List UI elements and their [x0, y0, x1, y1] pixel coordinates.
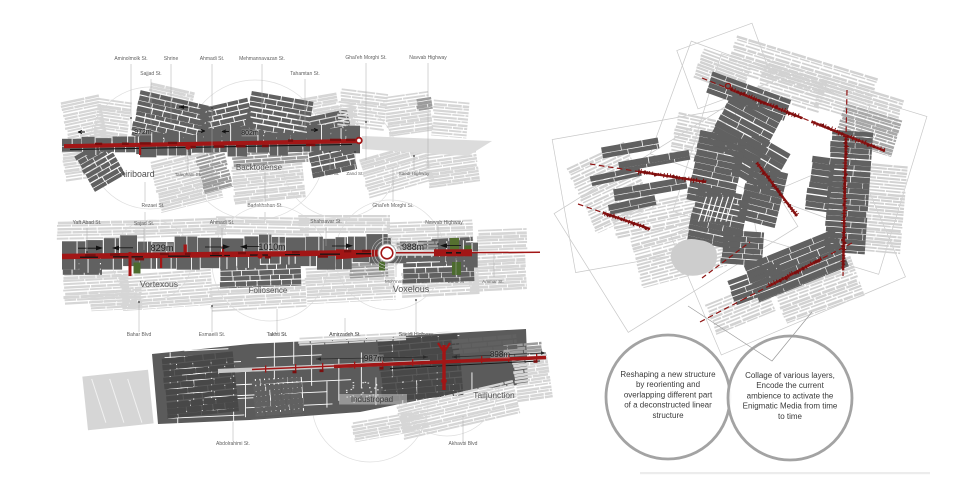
svg-text:Aminolmolk St.: Aminolmolk St. [114, 56, 147, 62]
svg-text:Zand St: Zand St [448, 279, 465, 284]
svg-text:898m: 898m [490, 350, 510, 359]
svg-text:Voxelous: Voxelous [393, 284, 430, 294]
svg-text:972m: 972m [134, 129, 152, 136]
svg-text:Encode the current: Encode the current [756, 381, 824, 390]
svg-text:1010m: 1010m [259, 242, 286, 252]
svg-text:Navvab Highway: Navvab Highway [425, 220, 463, 226]
svg-text:Sajjad St.: Sajjad St. [140, 71, 161, 77]
svg-text:Akhavbi Blvd: Akhavbi Blvd [449, 441, 478, 447]
svg-text:Rezaei St.: Rezaei St. [141, 203, 164, 209]
svg-text:Bahar Blvd: Bahar Blvd [127, 332, 152, 338]
svg-text:Airiboard: Airiboard [119, 169, 154, 179]
svg-text:Ahmadi St.: Ahmadi St. [200, 56, 224, 62]
svg-text:Backtodense: Backtodense [236, 163, 283, 172]
svg-text:Collage of various layers,: Collage of various layers, [745, 371, 835, 380]
svg-text:829m: 829m [151, 243, 174, 253]
svg-text:Amirzadeh St.: Amirzadeh St. [329, 332, 360, 338]
svg-text:Ghal'eh Morghi St.: Ghal'eh Morghi St. [372, 203, 413, 209]
svg-text:Reshaping a new structure: Reshaping a new structure [620, 370, 716, 379]
svg-text:Ammar St.: Ammar St. [482, 279, 504, 284]
svg-text:Sajad St.: Sajad St. [134, 221, 154, 227]
svg-text:Mehmannavazan St.: Mehmannavazan St. [239, 56, 285, 62]
svg-text:Abdolrahimi St.: Abdolrahimi St. [216, 441, 250, 447]
svg-text:Ghal'eh Morghi St.: Ghal'eh Morghi St. [345, 55, 386, 61]
svg-text:Shahsavar St.: Shahsavar St. [310, 219, 341, 225]
svg-text:Shrine: Shrine [164, 56, 179, 62]
svg-text:overlapping different part: overlapping different part [624, 390, 713, 399]
svg-text:802m: 802m [241, 130, 259, 137]
svg-text:Enigmatic Media from time: Enigmatic Media from time [743, 402, 838, 411]
svg-text:Navvab Highway: Navvab Highway [409, 55, 447, 61]
svg-text:Esmaeili St.: Esmaeili St. [199, 332, 225, 338]
svg-text:Taleghani St.: Taleghani St. [175, 172, 202, 177]
svg-text:Ahmadi St.: Ahmadi St. [210, 220, 234, 226]
svg-text:of a deconstructed linear: of a deconstructed linear [624, 401, 712, 410]
svg-text:987m: 987m [364, 354, 384, 363]
svg-text:Saedi Highway: Saedi Highway [399, 171, 430, 176]
svg-text:to time: to time [778, 412, 803, 421]
svg-text:ambience to activate the: ambience to activate the [747, 391, 834, 400]
svg-text:structure: structure [652, 411, 684, 420]
svg-text:Industropad: Industropad [351, 395, 393, 404]
svg-text:Badakhshan St.: Badakhshan St. [247, 203, 282, 209]
svg-text:Yaft Abad St.: Yaft Abad St. [73, 220, 102, 226]
svg-text:Tahamtan St.: Tahamtan St. [290, 71, 319, 77]
svg-text:Foliosence: Foliosence [249, 286, 288, 295]
svg-text:Saeidi Highway: Saeidi Highway [399, 332, 434, 338]
svg-text:Tailjunction: Tailjunction [473, 390, 515, 400]
svg-text:Safari St.: Safari St. [321, 171, 340, 176]
svg-text:Zand St.: Zand St. [346, 171, 363, 176]
svg-text:Vortexous: Vortexous [140, 279, 178, 289]
svg-text:Takhti St.: Takhti St. [267, 332, 288, 338]
svg-text:988m: 988m [402, 242, 424, 252]
svg-text:by reorienting and: by reorienting and [636, 380, 700, 389]
